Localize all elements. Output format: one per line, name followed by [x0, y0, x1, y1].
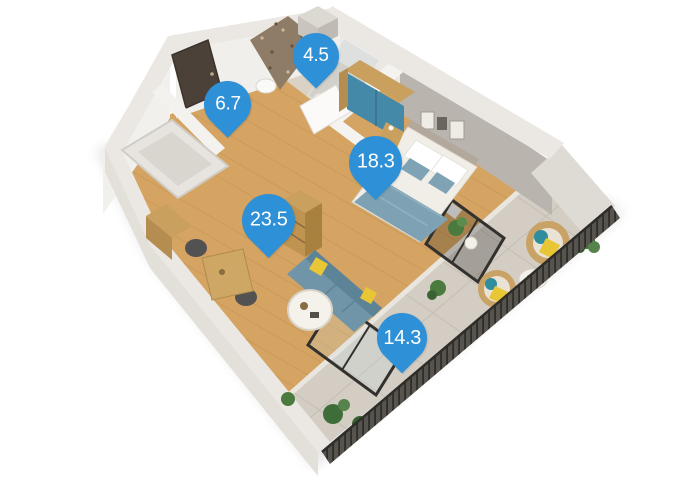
area-pin-bedroom-label: 18.3 — [357, 151, 395, 174]
coffee-table — [288, 290, 332, 330]
area-pin-hallway-label: 6.7 — [215, 94, 241, 116]
floor-plan-viewer: 4.5 6.7 18.3 23.5 14.3 — [0, 0, 700, 486]
sink — [256, 79, 276, 93]
area-pin-shower-room-label: 4.5 — [303, 45, 329, 67]
towel-basket — [465, 237, 477, 249]
dining-chair — [185, 239, 207, 257]
floor-plan — [0, 0, 700, 486]
area-pin-living-room-label: 23.5 — [250, 209, 288, 232]
area-pin-terrace-label: 14.3 — [383, 327, 421, 350]
